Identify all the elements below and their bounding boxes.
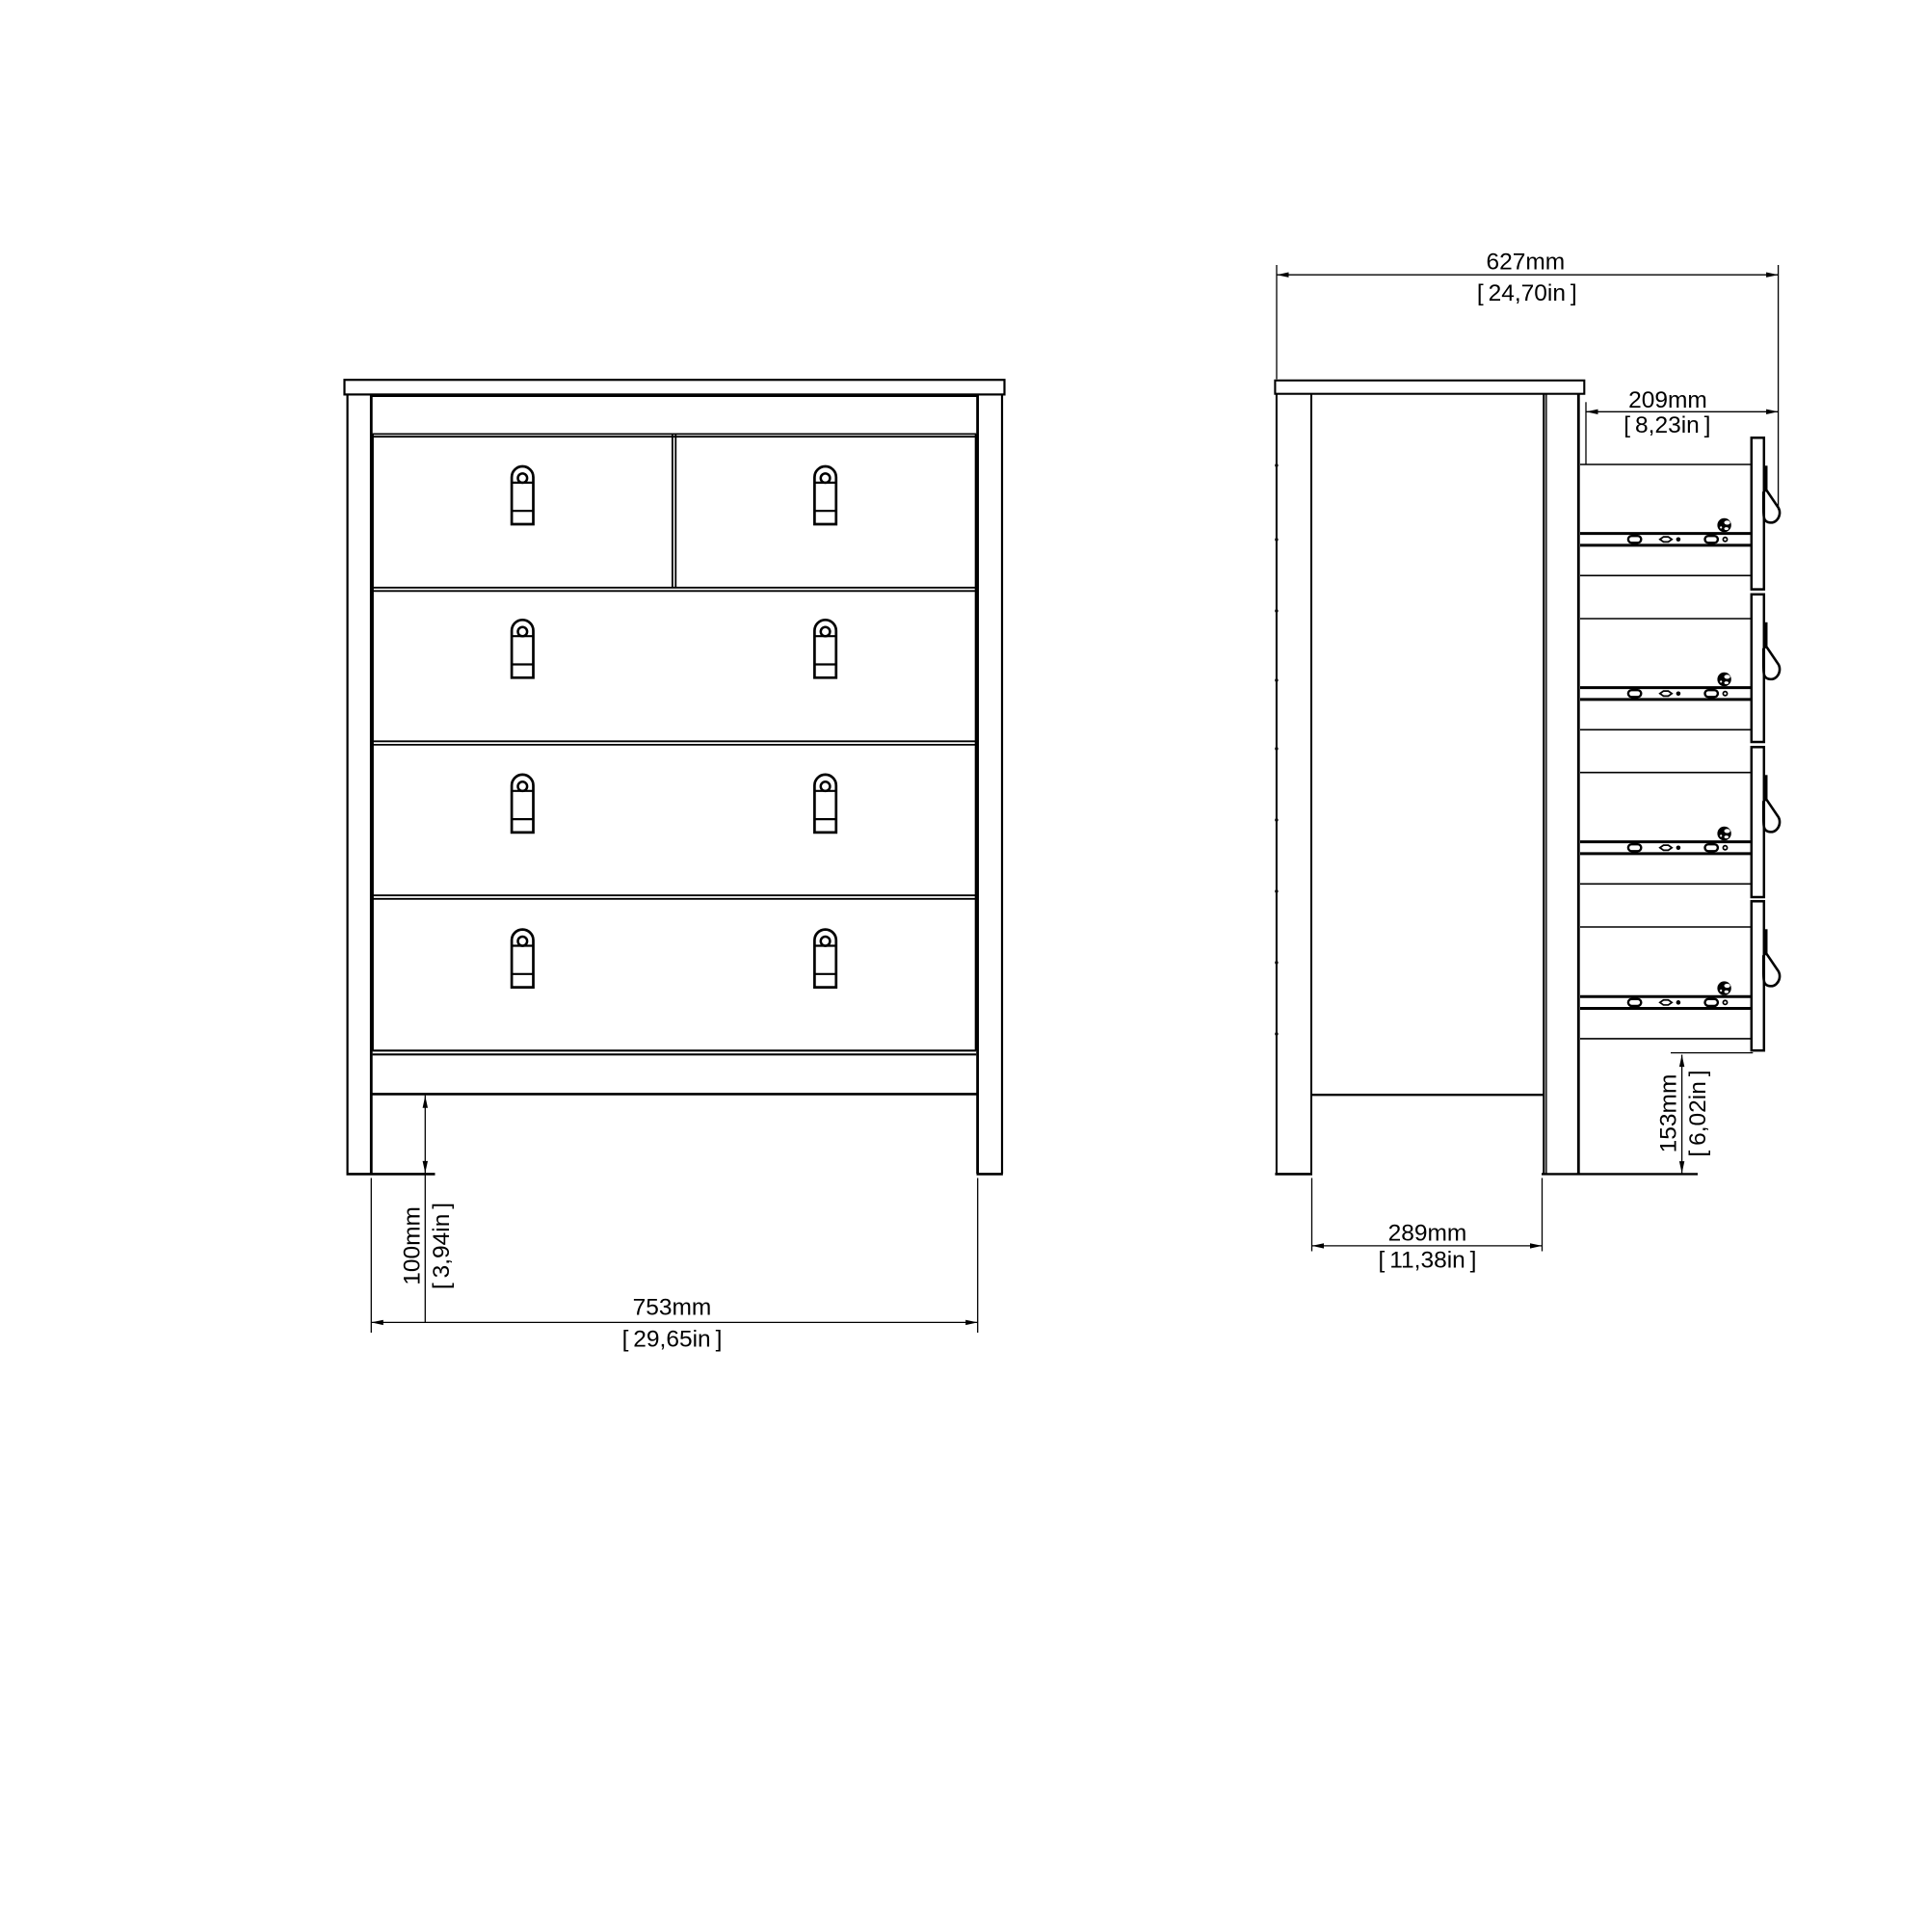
svg-text:209mm: 209mm [1628, 387, 1707, 413]
svg-text:[ 24,70in ]: [ 24,70in ] [1477, 280, 1577, 306]
svg-text:[ 29,65in ]: [ 29,65in ] [622, 1327, 723, 1353]
svg-text:[ 11,38in ]: [ 11,38in ] [1379, 1248, 1477, 1274]
svg-text:100mm: 100mm [400, 1206, 426, 1285]
svg-text:[ 3,94in ]: [ 3,94in ] [429, 1203, 455, 1289]
svg-text:627mm: 627mm [1486, 250, 1565, 276]
svg-text:[ 6,02in ]: [ 6,02in ] [1685, 1070, 1711, 1156]
svg-text:[ 8,23in ]: [ 8,23in ] [1623, 412, 1710, 438]
svg-text:153mm: 153mm [1655, 1074, 1681, 1153]
svg-text:289mm: 289mm [1388, 1221, 1467, 1247]
svg-text:753mm: 753mm [633, 1295, 712, 1321]
